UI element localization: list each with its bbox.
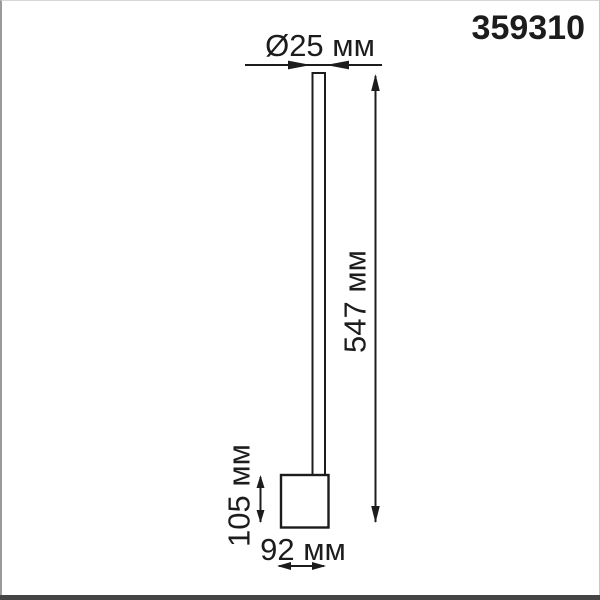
arrowhead-down-icon (371, 506, 380, 523)
base-width-dimension-label: 92 мм (241, 533, 365, 566)
arrowhead-down-icon (257, 510, 265, 523)
diameter-dimension-label: Ø25 мм (254, 29, 386, 62)
lamp-dimension-drawing (0, 0, 600, 600)
lamp-tube (313, 73, 326, 476)
dimension-diagram-page: 359310 Ø25 мм 547 мм 105 мм 92 мм (0, 0, 600, 600)
arrowhead-up-icon (257, 475, 265, 488)
lamp-mounting-box (281, 475, 329, 528)
bottom-bar (0, 595, 600, 600)
product-code: 359310 (472, 11, 585, 45)
arrowhead-up-icon (371, 74, 380, 91)
height-dimension-label: 547 мм (339, 240, 372, 364)
